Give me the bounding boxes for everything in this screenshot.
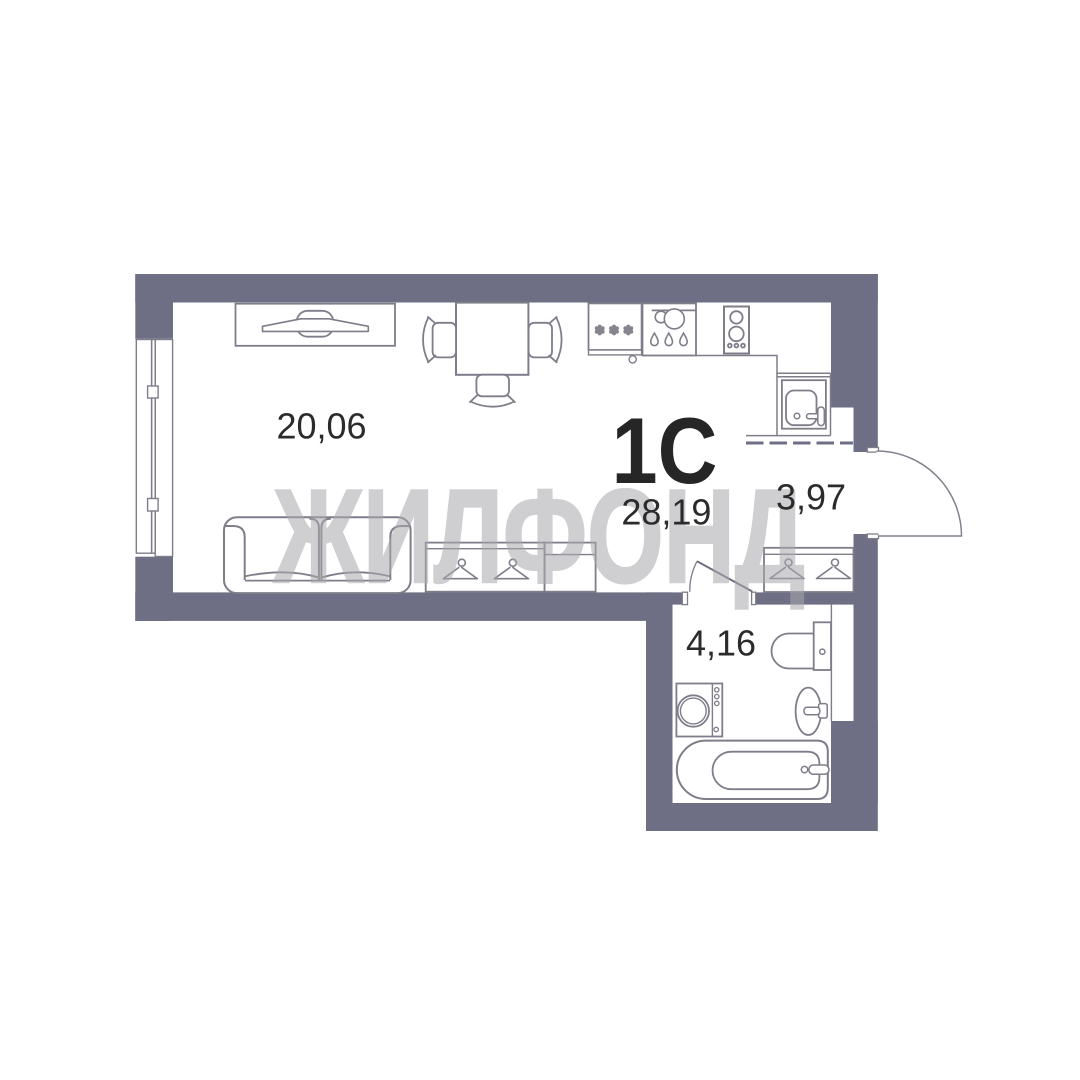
svg-text:28,19: 28,19 — [621, 492, 711, 533]
svg-text:ЖИЛФОНД: ЖИЛФОНД — [273, 463, 805, 611]
svg-text:20,06: 20,06 — [276, 406, 366, 447]
svg-text:1С: 1С — [612, 398, 718, 503]
svg-text:4,16: 4,16 — [686, 623, 756, 664]
svg-text:3,97: 3,97 — [776, 477, 846, 518]
